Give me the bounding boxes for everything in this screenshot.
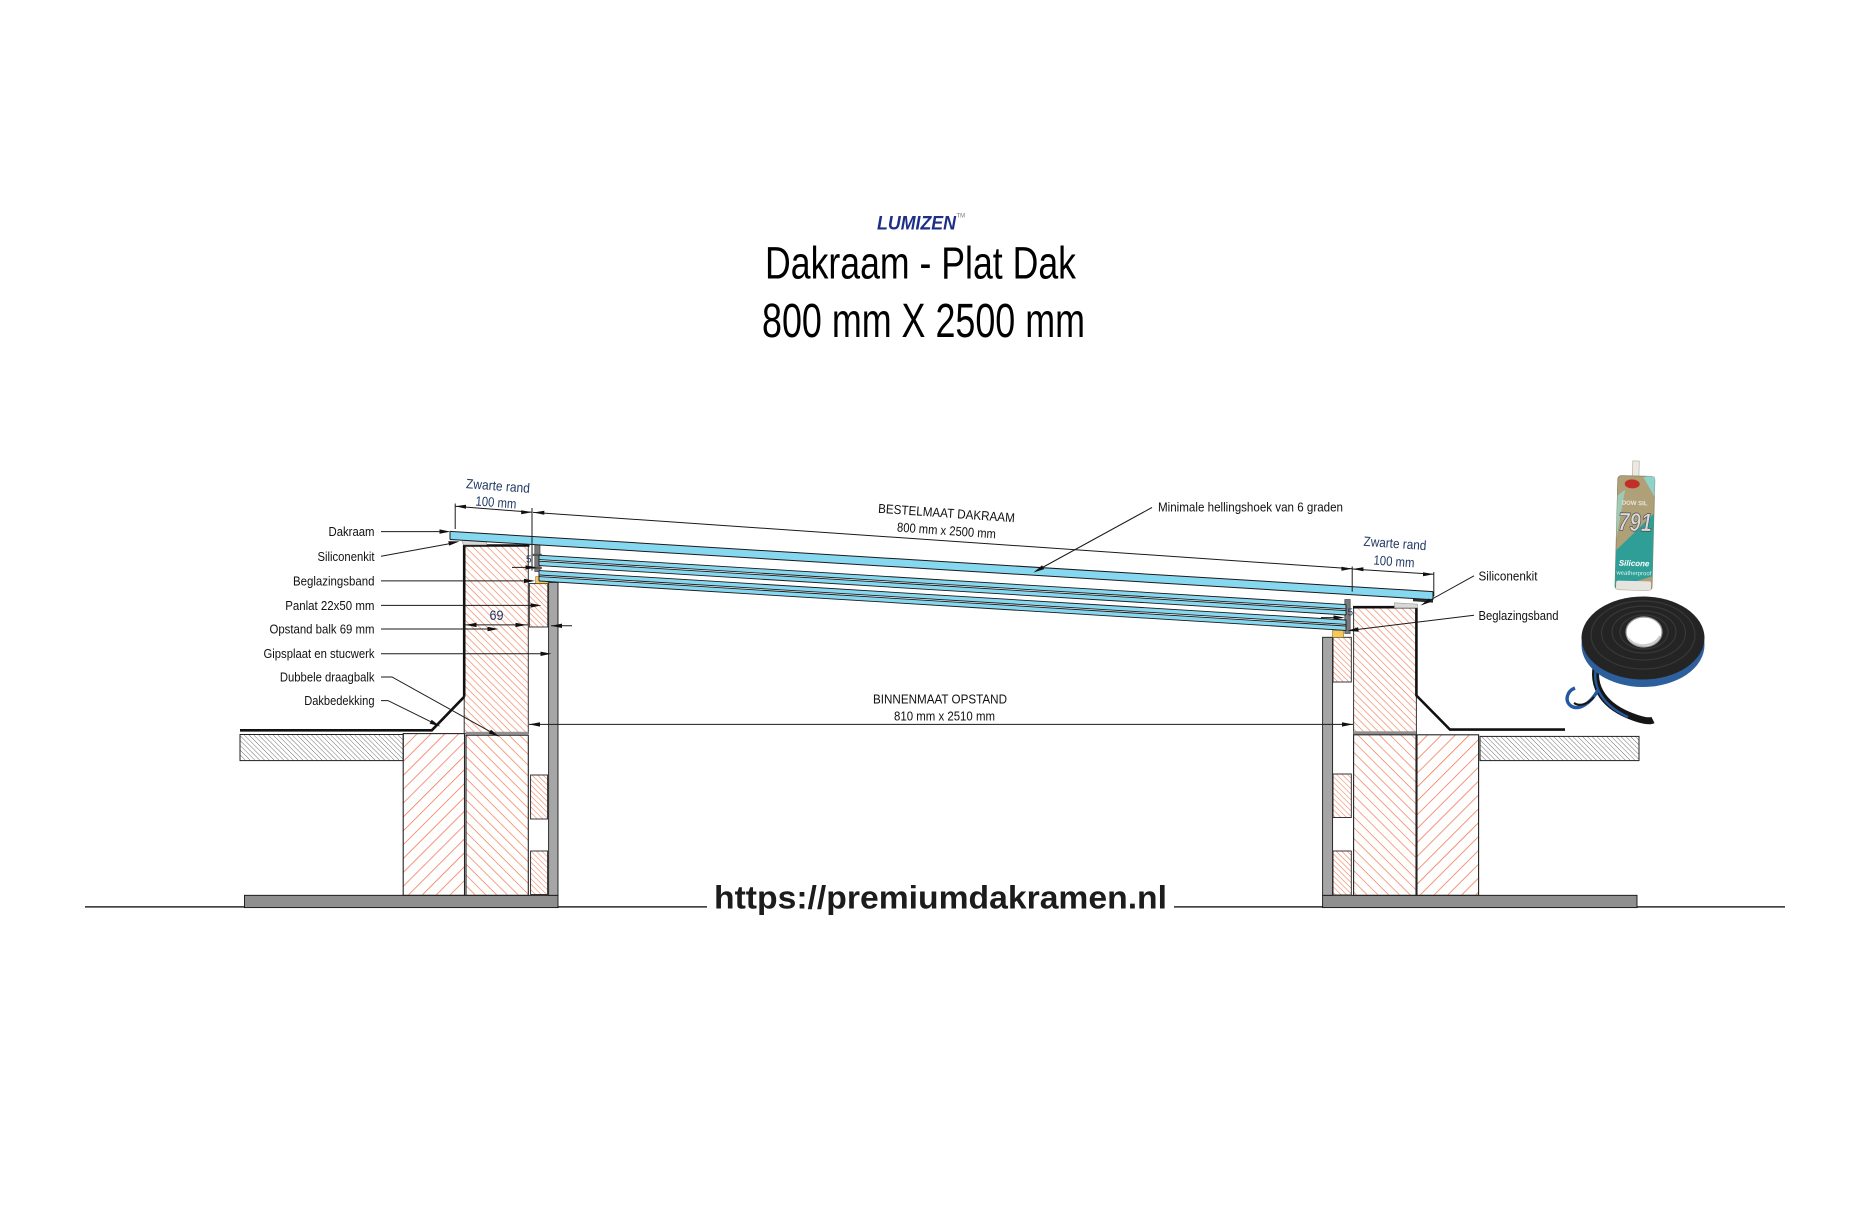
- svg-text:800 mm X 2500 mm: 800 mm X 2500 mm: [762, 295, 1085, 348]
- svg-text:BINNENMAAT OPSTAND: BINNENMAAT OPSTAND: [873, 693, 1007, 707]
- svg-text:Panlat 22x50 mm: Panlat 22x50 mm: [285, 598, 374, 613]
- svg-text:Siliconenkit: Siliconenkit: [1479, 569, 1538, 584]
- svg-text:Dubbele draagbalk: Dubbele draagbalk: [280, 670, 375, 685]
- svg-text:DOW SIL: DOW SIL: [1622, 501, 1648, 508]
- svg-text:Beglazingsband: Beglazingsband: [1479, 608, 1559, 623]
- svg-text:Dakraam: Dakraam: [329, 524, 375, 539]
- svg-text:5: 5: [1348, 608, 1354, 619]
- svg-text:810 mm x 2510 mm: 810 mm x 2510 mm: [894, 710, 995, 724]
- svg-text:Minimale hellingshoek van 6 gr: Minimale hellingshoek van 6 graden: [1158, 500, 1343, 515]
- svg-text:5: 5: [526, 555, 532, 566]
- svg-text:Dakbedekking: Dakbedekking: [304, 693, 374, 708]
- svg-text:Siliconenkit: Siliconenkit: [318, 549, 375, 564]
- svg-text:https://premiumdakramen.nl: https://premiumdakramen.nl: [714, 880, 1167, 916]
- svg-text:Gipsplaat en stucwerk: Gipsplaat en stucwerk: [264, 646, 375, 661]
- svg-text:Beglazingsband: Beglazingsband: [293, 574, 375, 589]
- svg-text:Dakraam - Plat Dak: Dakraam - Plat Dak: [765, 237, 1076, 288]
- svg-text:100 mm: 100 mm: [475, 493, 517, 511]
- svg-text:100 mm: 100 mm: [1373, 553, 1415, 571]
- svg-text:weatherproof: weatherproof: [1615, 571, 1651, 578]
- svg-text:791: 791: [1618, 507, 1653, 538]
- svg-text:TM: TM: [957, 214, 966, 220]
- svg-text:69: 69: [490, 608, 504, 623]
- svg-text:LUMIZEN: LUMIZEN: [877, 214, 957, 235]
- svg-text:Zwarte rand: Zwarte rand: [1363, 534, 1427, 553]
- svg-text:Silicone: Silicone: [1619, 559, 1650, 569]
- svg-text:Opstand balk 69 mm: Opstand balk 69 mm: [270, 622, 375, 637]
